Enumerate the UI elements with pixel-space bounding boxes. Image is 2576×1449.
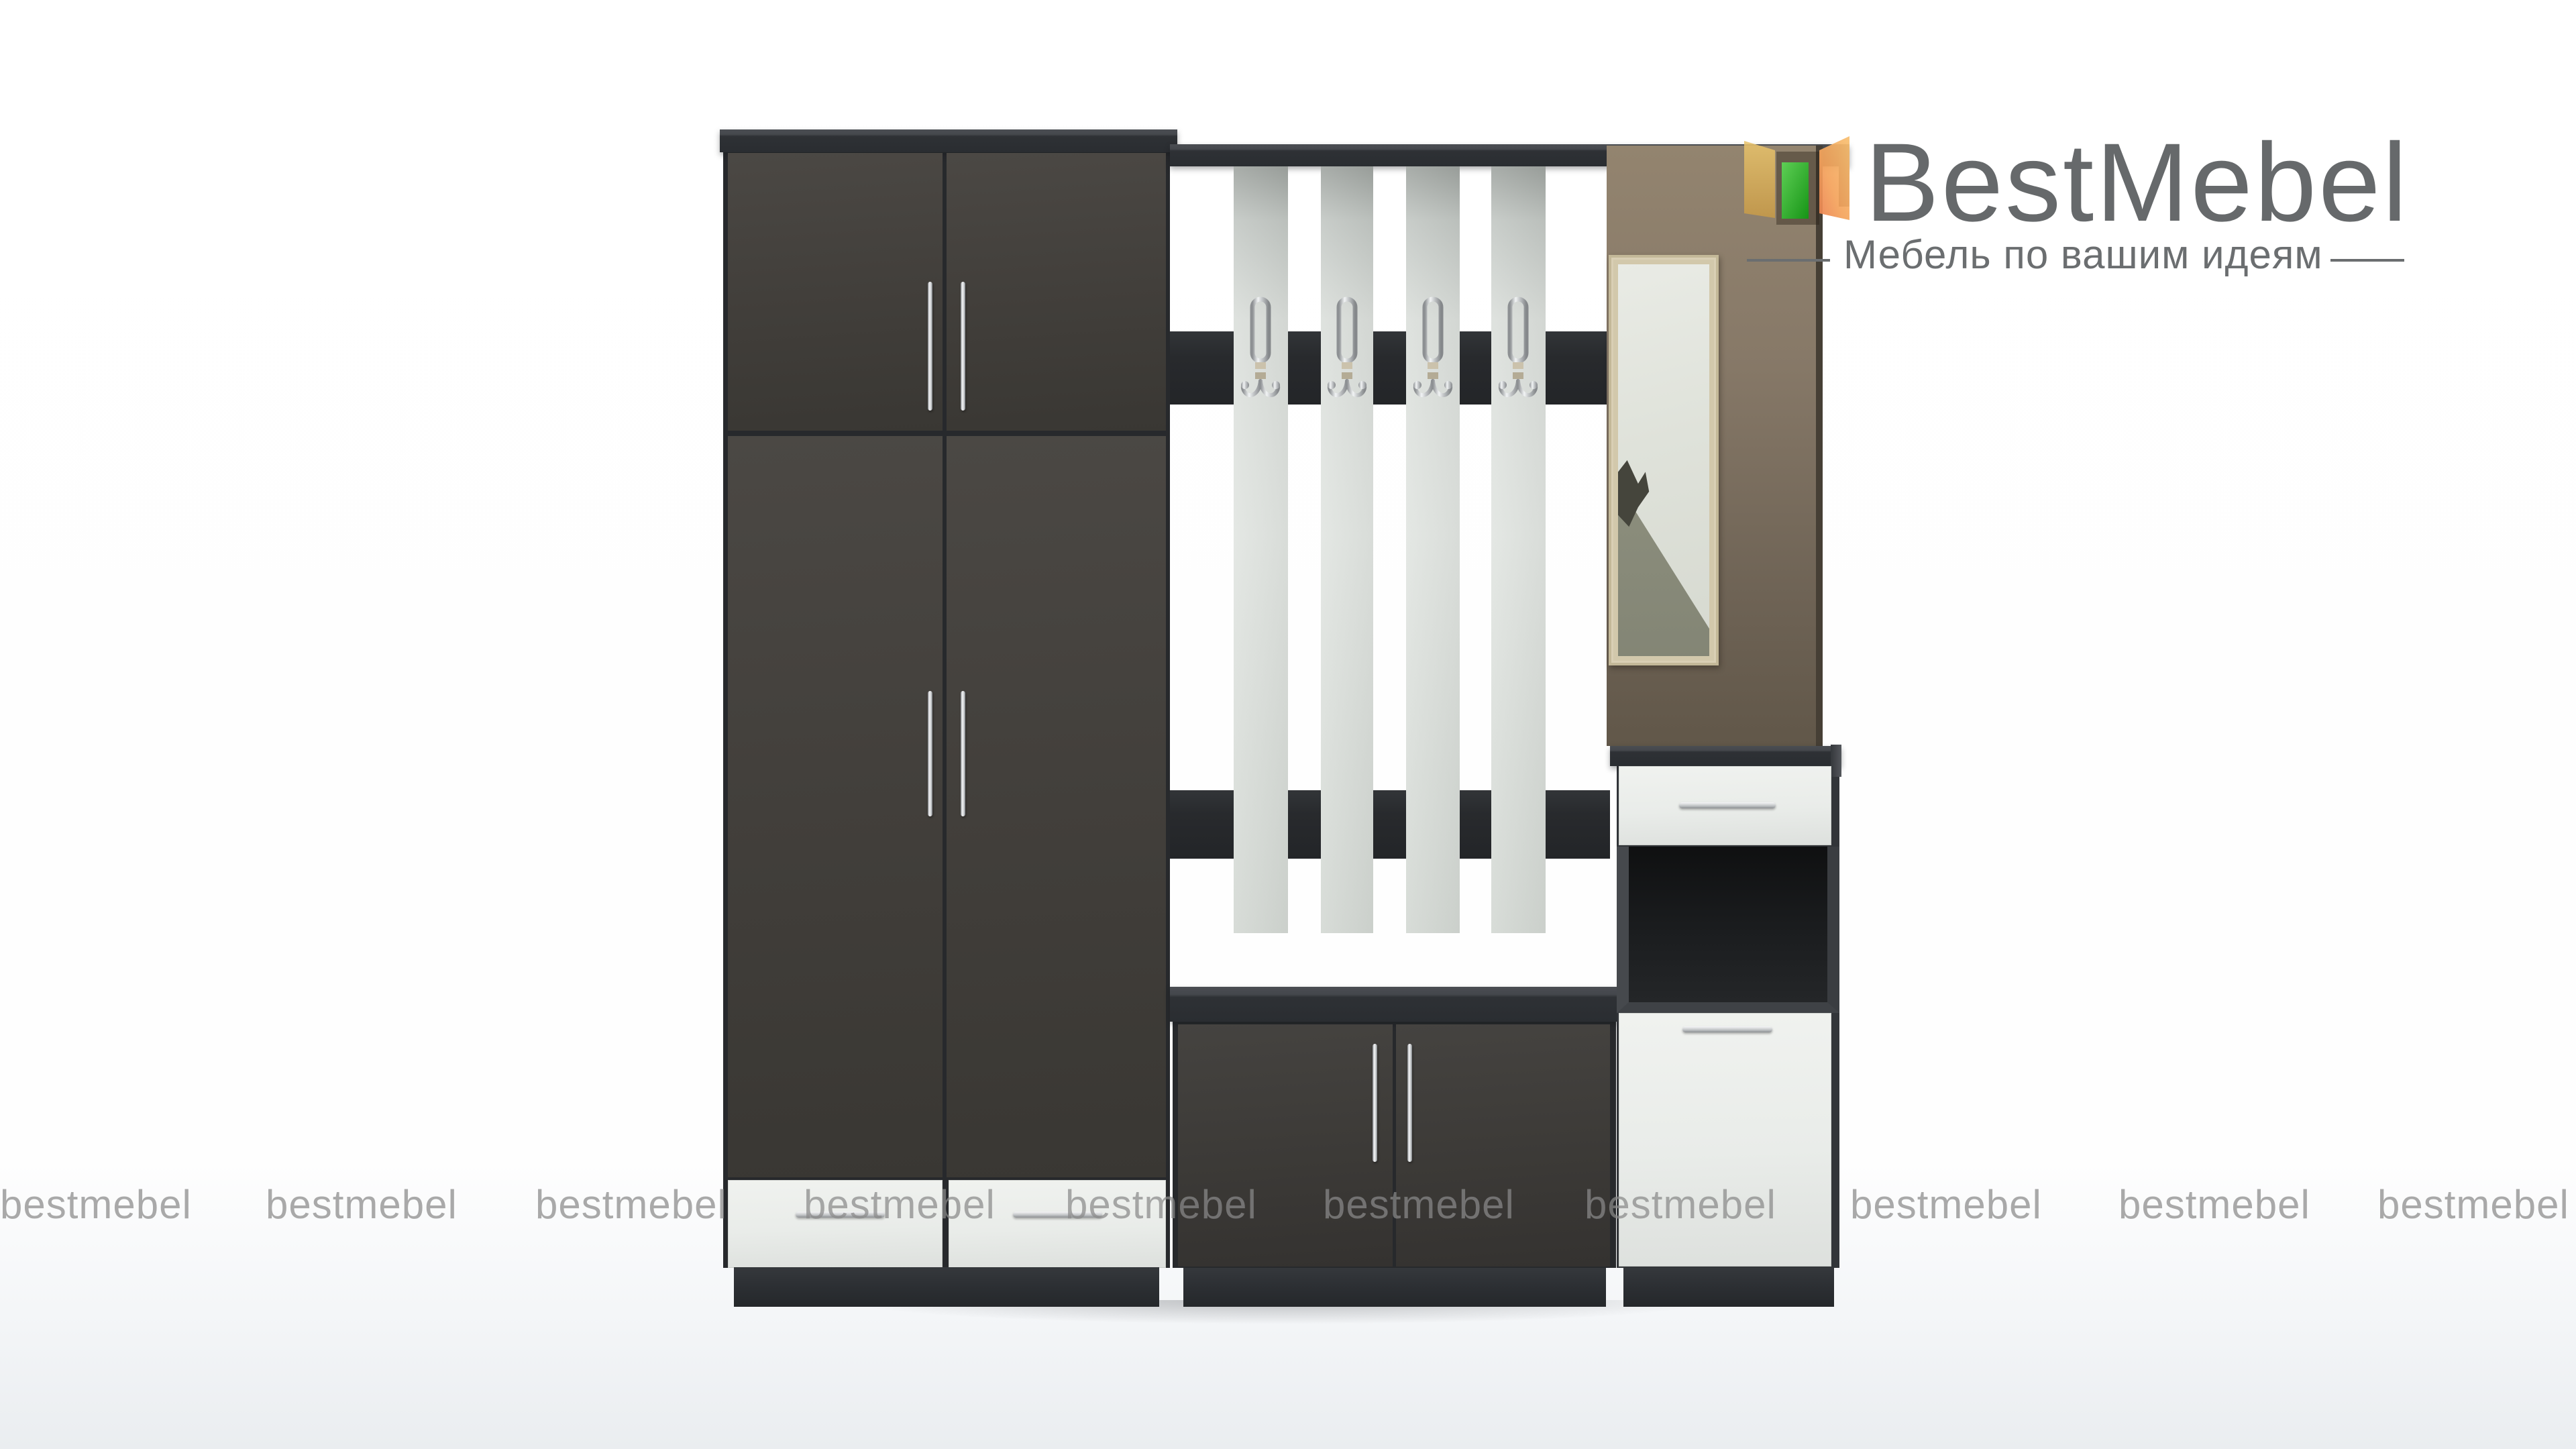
brand-logo-mark-icon: [1740, 131, 1854, 225]
watermark-text: bestmebel: [0, 1185, 192, 1225]
watermark-text: bestmebel: [2118, 1185, 2310, 1225]
watermark-text: bestmebel: [266, 1185, 458, 1225]
mirror-panel-edge: [1816, 146, 1823, 746]
bench-door-right: [1396, 1024, 1610, 1267]
mirror-glass: [1618, 264, 1709, 656]
watermark-text: bestmebel: [1323, 1185, 1515, 1225]
wardrobe-upper-door-handle: [928, 282, 932, 411]
bench-door-handle: [1373, 1044, 1377, 1162]
brand-tagline: Мебель по вашим идеям: [1843, 235, 2323, 275]
bench-plinth: [1183, 1268, 1606, 1307]
wardrobe-upper-door-right: [947, 153, 1166, 431]
bench-door-left: [1178, 1024, 1393, 1267]
coat-rack-slat: [1406, 166, 1460, 933]
cabinet-plinth: [1623, 1268, 1834, 1307]
cabinet-top-panel: [1610, 746, 1841, 766]
wardrobe-top-panel: [720, 129, 1177, 152]
watermark-text: bestmebel: [1065, 1185, 1257, 1225]
cabinet-door: [1619, 1013, 1831, 1267]
brand-name: BestMebel: [1865, 127, 2409, 239]
coat-rack-slat: [1234, 166, 1288, 933]
watermark-text: bestmebel: [804, 1185, 996, 1225]
wardrobe-door-right: [947, 436, 1166, 1177]
wardrobe-plinth: [734, 1267, 1159, 1307]
coat-hook: [1497, 295, 1540, 408]
cabinet-drawer-handle: [1679, 802, 1776, 808]
watermark-text: bestmebel: [2377, 1185, 2569, 1225]
coat-rack-slat: [1321, 166, 1373, 933]
coat-rack-slat: [1491, 166, 1546, 933]
wardrobe-upper-door-left: [728, 153, 943, 431]
cabinet-open-shelf: [1617, 847, 1839, 1013]
wardrobe-door-handle: [961, 691, 965, 816]
cabinet-top-side: [1831, 745, 1841, 777]
mirror-reflection: [1618, 264, 1709, 656]
cabinet-door-handle: [1682, 1026, 1772, 1032]
tagline-dash-right: [2330, 259, 2404, 262]
watermark-text: bestmebel: [1585, 1185, 1776, 1225]
product-render: bestmebel bestmebel bestmebel bestmebel …: [0, 0, 2576, 1449]
coat-hook: [1239, 295, 1282, 408]
wardrobe-upper-door-handle: [961, 282, 965, 411]
watermark-text: bestmebel: [535, 1185, 727, 1225]
coat-hook: [1411, 295, 1454, 408]
wardrobe-door-handle: [928, 691, 932, 816]
coat-hook: [1326, 295, 1368, 408]
tagline-dash-left: [1747, 259, 1830, 262]
wardrobe-door-left: [728, 436, 943, 1177]
bench-top-panel: [1170, 987, 1620, 1022]
bench-door-handle: [1407, 1044, 1412, 1162]
watermark-text: bestmebel: [1850, 1185, 2042, 1225]
